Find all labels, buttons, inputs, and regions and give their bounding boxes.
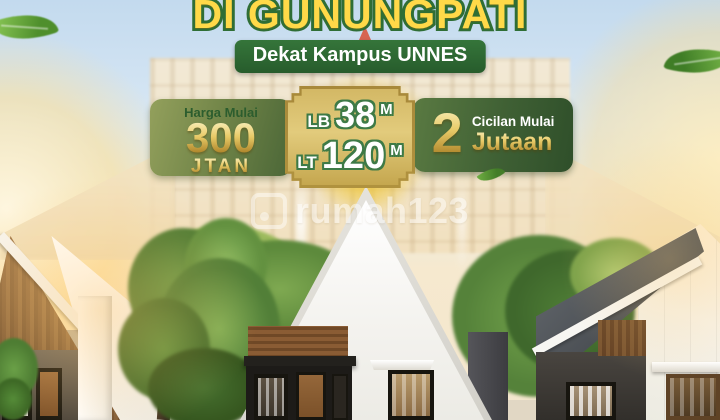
left-house-door: [36, 368, 62, 420]
rumah123-watermark: rumah123: [251, 190, 469, 232]
price-value: 300: [150, 120, 292, 157]
spec-value: 38: [335, 97, 375, 133]
spec-label: LT: [297, 153, 317, 173]
center-house-door: [296, 372, 326, 420]
center-house-right-window: [388, 370, 434, 420]
location-badge: Dekat Kampus UNNES: [235, 40, 486, 73]
watermark-text: rumah123: [295, 190, 469, 232]
center-house-awning: [370, 360, 434, 370]
headline-text: DI GUNUNGPATI: [193, 0, 528, 37]
center-house-canopy: [244, 356, 356, 366]
center-house-window: [254, 374, 288, 420]
rumah123-logo-icon: [251, 193, 287, 229]
installment-label: Cicilan Mulai: [472, 114, 555, 129]
spec-label: LB: [307, 112, 330, 132]
headline: DI GUNUNGPATI DI GUNUNGPATI: [0, 0, 720, 35]
property-ad-poster: rumah123 DI GUNUNGPATI DI GUNUNGPATI Dek…: [0, 0, 720, 420]
price-badge: Harga Mulai 300 JTAN: [150, 99, 292, 176]
specs-plaque-inner: LB 38 M LT 120 M: [288, 89, 412, 185]
spec-row-lb: LB 38 M: [288, 97, 412, 133]
spec-unit: M: [390, 142, 403, 159]
right-house-window: [666, 374, 720, 420]
spec-row-lt: LT 120 M: [288, 137, 412, 175]
price-unit: JTAN: [150, 157, 292, 176]
leaf-icon: [663, 39, 720, 83]
installment-unit: Jutaan: [472, 129, 553, 155]
right-house-awning: [652, 362, 720, 372]
spec-value: 120: [322, 137, 385, 175]
installment-badge: 2 Cicilan Mulai Jutaan: [413, 98, 573, 172]
right-house-curtain-window: [566, 382, 616, 420]
specs-plaque: LB 38 M LT 120 M: [285, 86, 415, 188]
installment-value: 2: [432, 105, 463, 161]
right-house-wood-section: [598, 320, 646, 356]
center-house-side-window: [332, 374, 348, 420]
spec-unit: M: [380, 101, 393, 118]
left-house-pillar: [78, 296, 112, 420]
